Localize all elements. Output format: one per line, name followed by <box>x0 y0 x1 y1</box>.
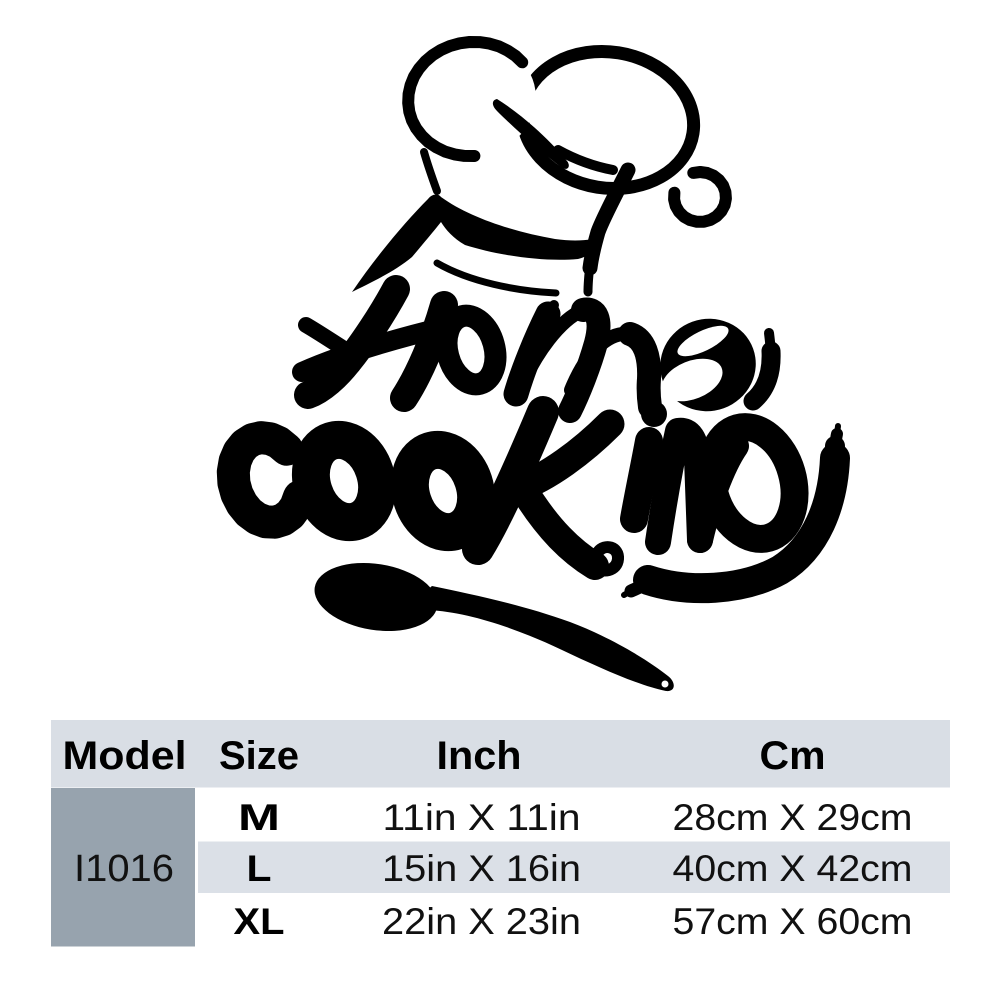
svg-text:Cm: Cm <box>760 734 826 778</box>
svg-text:57cm X 60cm: 57cm X 60cm <box>673 901 913 942</box>
svg-text:Inch: Inch <box>437 734 522 778</box>
svg-text:XL: XL <box>234 901 285 942</box>
svg-text:Size: Size <box>219 734 299 778</box>
svg-text:Model: Model <box>63 734 187 778</box>
svg-text:L: L <box>247 848 272 889</box>
svg-text:11in X 11in: 11in X 11in <box>383 797 581 838</box>
svg-text:28cm X 29cm: 28cm X 29cm <box>673 797 913 838</box>
svg-text:15in X 16in: 15in X 16in <box>382 848 581 889</box>
svg-text:I1016: I1016 <box>74 848 174 890</box>
svg-text:22in X 23in: 22in X 23in <box>382 901 581 942</box>
svg-text:40cm X 42cm: 40cm X 42cm <box>673 848 913 889</box>
svg-text:M: M <box>238 797 280 838</box>
